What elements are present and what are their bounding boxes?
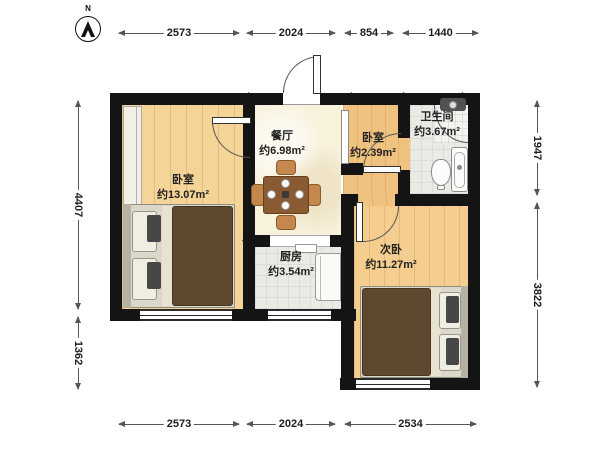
plate	[281, 201, 290, 210]
wall-kitchen-second	[341, 206, 354, 390]
bedroom-left-door-leaf	[212, 117, 251, 124]
table-center	[282, 191, 289, 198]
floor-second-doorway	[358, 194, 395, 206]
room-name: 餐厅	[259, 129, 305, 144]
dim-value: 2573	[164, 418, 194, 430]
label-bedroom-left: 卧室 约13.07m²	[157, 173, 209, 202]
dim-value: 4407	[72, 190, 84, 220]
label-bathroom: 卫生间 约3.67m²	[414, 110, 460, 139]
dining-chair-bottom	[276, 215, 296, 230]
dining-table	[263, 176, 309, 214]
bed-left-headboard	[123, 204, 131, 308]
dim-top-2: 2024	[246, 26, 336, 40]
dim-right-2: 3822	[530, 202, 544, 388]
toilet	[431, 159, 451, 186]
dim-bottom-3: 2534	[344, 417, 477, 431]
window-kitchen	[268, 309, 331, 321]
compass-arrow-notch	[85, 30, 91, 37]
room-name: 卧室	[350, 131, 396, 146]
dim-value: 1362	[72, 338, 84, 368]
dim-left-1: 4407	[71, 100, 85, 310]
bathtub-inner	[454, 152, 465, 188]
bed-left-cushion	[147, 262, 161, 289]
room-area: 约2.39m²	[350, 146, 396, 161]
dim-value: 2024	[276, 418, 306, 430]
bed-second-cushion	[446, 338, 459, 365]
dim-value: 854	[357, 27, 381, 39]
plate	[295, 190, 304, 199]
window-bedroom-left	[140, 309, 232, 321]
room-area: 约13.07m²	[157, 188, 209, 203]
dim-bottom-2: 2024	[246, 417, 336, 431]
dining-chair-top	[276, 160, 296, 175]
counter-edge	[320, 256, 321, 300]
dim-value: 2534	[395, 418, 425, 430]
dim-value: 1947	[531, 133, 543, 163]
floor-dining	[255, 105, 341, 235]
bed-second-headboard	[461, 286, 468, 378]
entrance-threshold	[283, 93, 320, 105]
label-bedroom-second: 次卧 约11.27m²	[365, 243, 416, 272]
wall-bathroom-bottom	[395, 194, 480, 206]
dim-value: 2573	[164, 27, 194, 39]
room-name: 厨房	[268, 250, 314, 265]
wall-bathroom-left-lower	[398, 170, 410, 194]
room-area: 约3.67m²	[414, 125, 460, 140]
dining-chair-right	[307, 184, 321, 206]
dim-value: 3822	[531, 280, 543, 310]
bed-left-duvet	[172, 206, 233, 306]
wall-right	[468, 93, 480, 390]
entrance-door-leaf	[313, 55, 321, 94]
bathtub	[451, 147, 468, 192]
bathtub-drain	[457, 165, 462, 170]
bed-second-cushion	[446, 296, 459, 323]
dim-value: 2024	[276, 27, 306, 39]
dim-top-1: 2573	[118, 26, 240, 40]
wall-top-left	[110, 93, 283, 105]
bathroom-door-leaf	[363, 166, 401, 173]
compass: N	[68, 2, 110, 46]
bed-second-duvet	[362, 288, 431, 376]
dim-value: 1440	[425, 27, 455, 39]
plate	[267, 190, 276, 199]
room-name: 卫生间	[414, 110, 460, 125]
room-area: 约6.98m²	[259, 144, 305, 159]
sliding-panel-small-bedroom	[341, 110, 349, 164]
room-area: 约3.54m²	[268, 265, 314, 280]
wardrobe	[123, 106, 142, 207]
dim-left-2: 1362	[71, 316, 85, 390]
label-kitchen: 厨房 约3.54m²	[268, 250, 314, 279]
wall-stub-dining	[341, 163, 363, 175]
compass-n-label: N	[85, 4, 91, 13]
kitchen-counter	[315, 253, 341, 301]
bedroom-second-door-leaf	[356, 202, 363, 242]
toilet-base	[437, 185, 445, 190]
floor-plan: 卧室 约13.07m² 餐厅 约6.98m² 卧室 约2.39m² 卫生间 约3…	[0, 0, 600, 450]
room-name: 次卧	[365, 243, 416, 258]
window-bedroom-second	[356, 378, 430, 390]
label-dining: 餐厅 约6.98m²	[259, 129, 305, 158]
wall-left	[110, 93, 122, 321]
dim-top-3: 854	[344, 26, 394, 40]
room-area: 约11.27m²	[365, 258, 416, 273]
dim-top-4: 1440	[402, 26, 479, 40]
wardrobe-divider	[136, 107, 137, 206]
plate	[281, 179, 290, 188]
basin	[449, 101, 457, 109]
dim-bottom-1: 2573	[118, 417, 240, 431]
dim-right-1: 1947	[530, 100, 544, 196]
room-name: 卧室	[157, 173, 209, 188]
label-bedroom-small: 卧室 约2.39m²	[350, 131, 396, 160]
bed-left-cushion	[147, 215, 161, 242]
